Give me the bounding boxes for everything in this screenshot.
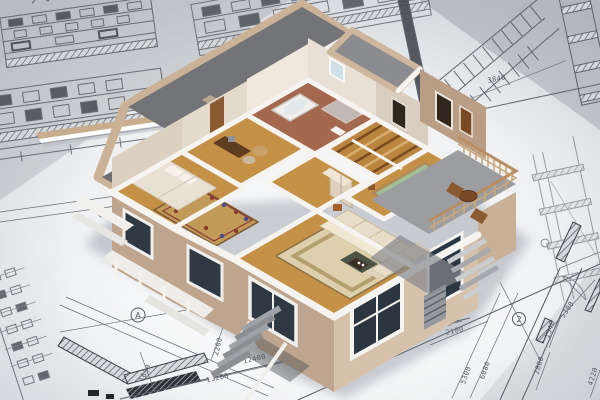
svg-text:2: 2 <box>516 315 521 324</box>
side-table <box>252 146 268 156</box>
svg-text:A: A <box>135 311 141 320</box>
rendered-scene: 1650 16200 12400 2200 6600 3840 2100 530… <box>0 0 600 400</box>
desk-chair <box>243 156 256 164</box>
computer-monitor <box>228 136 235 142</box>
scene-canvas: 1650 16200 12400 2200 6600 3840 2100 530… <box>0 0 600 400</box>
stool <box>333 204 342 211</box>
